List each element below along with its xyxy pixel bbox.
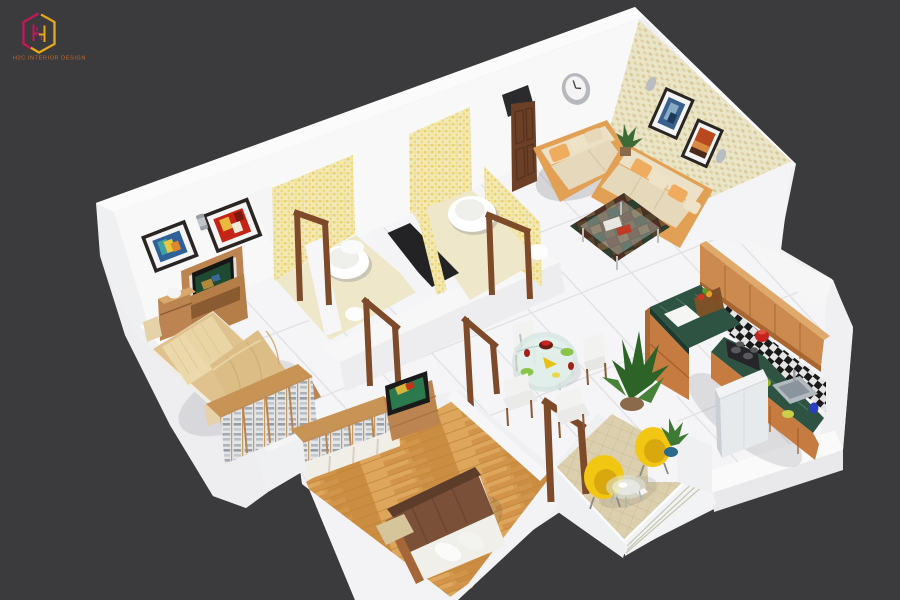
svg-text:H2C INTERIOR DESIGN: H2C INTERIOR DESIGN xyxy=(13,56,86,62)
